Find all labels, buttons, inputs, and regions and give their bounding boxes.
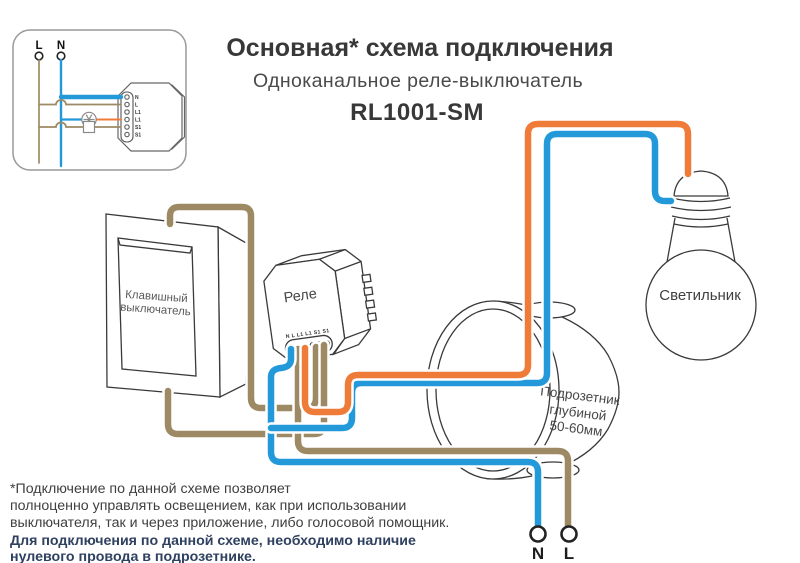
supply-line-label: L — [564, 544, 574, 563]
inset-switch-icon — [84, 122, 95, 133]
footnote-line4: Для подключения по данной схеме, необход… — [10, 533, 416, 549]
footnote-line1: *Подключение по данной схеме позволяет — [10, 481, 291, 497]
inset-terminal-l1a: L1 — [135, 110, 141, 116]
footnote-line3: выключателя, так и через приложение, либ… — [10, 515, 449, 531]
inset-terminal-n: N — [135, 95, 139, 101]
bulb-cap-top — [674, 171, 728, 196]
supply-neutral-label: N — [532, 544, 544, 563]
page-subtitle: Одноканальное реле-выключатель — [253, 70, 583, 92]
footnote-line2: полноценно управлять освещением, как при… — [10, 498, 406, 514]
wiring-diagram-page: Основная* схема подключения Одноканально… — [0, 0, 800, 563]
model-number: RL1001-SM — [350, 99, 484, 126]
inset-line-label: L — [35, 40, 42, 52]
wall-switch: Клавишный выключатель — [106, 214, 248, 397]
supply-neutral-terminal — [531, 527, 546, 542]
inset-neutral-label: N — [57, 40, 65, 52]
supply-line-terminal — [562, 527, 577, 542]
diagram-canvas: Основная* схема подключения Одноканально… — [0, 0, 800, 563]
inset-terminal-s1a: S1 — [135, 125, 141, 131]
page-title: Основная* схема подключения — [226, 34, 613, 62]
inset-terminal-l: L — [135, 103, 138, 109]
inset-terminal-l1b: L1 — [135, 118, 141, 124]
supply-terminals: N L — [531, 527, 577, 563]
footnote: *Подключение по данной схеме позволяет п… — [10, 481, 449, 563]
bulb-label: Светильник — [659, 287, 741, 304]
inset-schematic-panel: L N N L L1 L1 S1 S1 — [13, 30, 186, 170]
footnote-line5: нулевого провода в подрозетнике. — [10, 549, 256, 563]
junction-box-label: Подрозетник глубиной 50-60мм — [535, 383, 620, 440]
wall-switch-label: Клавишный выключатель — [120, 289, 192, 319]
inset-line-terminal — [35, 52, 43, 60]
inset-neutral-terminal — [57, 52, 65, 60]
inset-terminal-s1b: S1 — [135, 133, 141, 139]
